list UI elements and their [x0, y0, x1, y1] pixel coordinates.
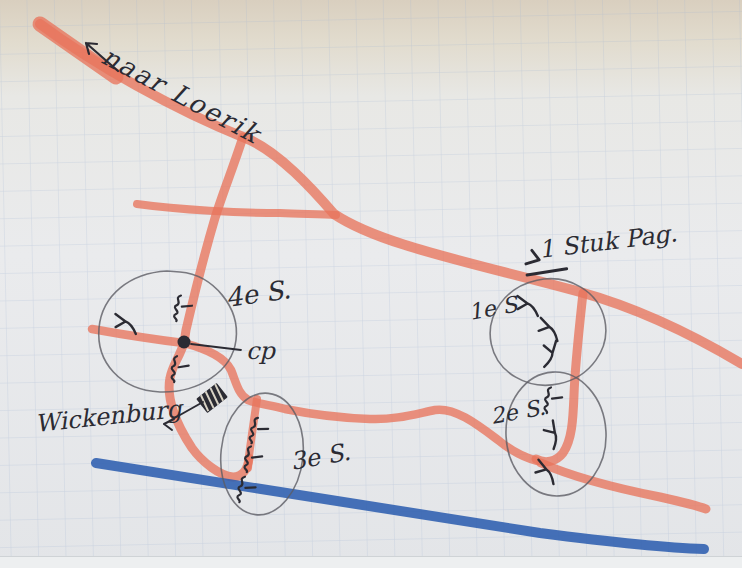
- paper-grid: [0, 0, 742, 568]
- photo-bottom-edge: [0, 557, 742, 568]
- command-post-dot: [178, 336, 191, 349]
- sketch-map-canvas: naar Loerik 1 Stuk Pag. 4e S. cp Wickenb…: [0, 0, 742, 568]
- sketch-map-photo: naar Loerik 1 Stuk Pag. 4e S. cp Wickenb…: [0, 0, 742, 568]
- label-command-post: cp: [246, 337, 276, 365]
